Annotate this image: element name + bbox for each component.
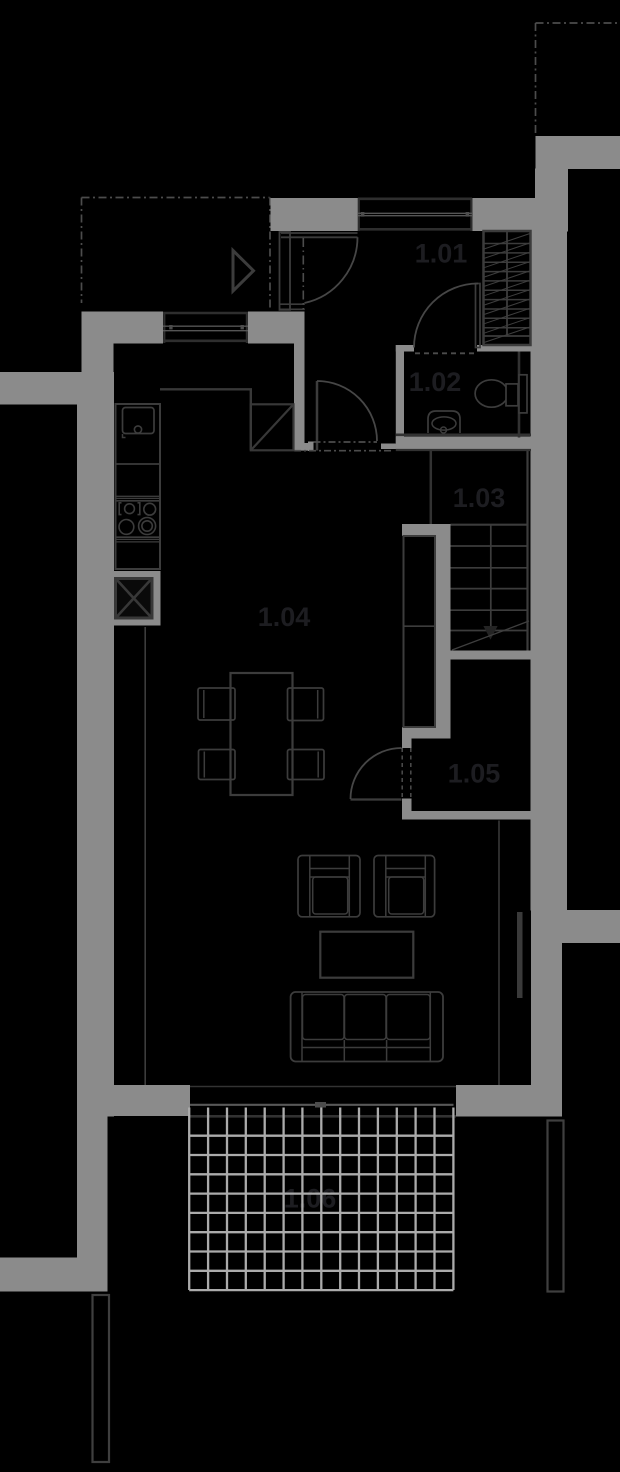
- svg-text:1.06: 1.06: [284, 1184, 337, 1214]
- svg-text:1.05: 1.05: [448, 759, 501, 789]
- svg-text:1.02: 1.02: [409, 367, 462, 397]
- svg-text:1.01: 1.01: [415, 239, 468, 269]
- svg-text:1.04: 1.04: [258, 602, 311, 632]
- svg-text:1.03: 1.03: [453, 483, 506, 513]
